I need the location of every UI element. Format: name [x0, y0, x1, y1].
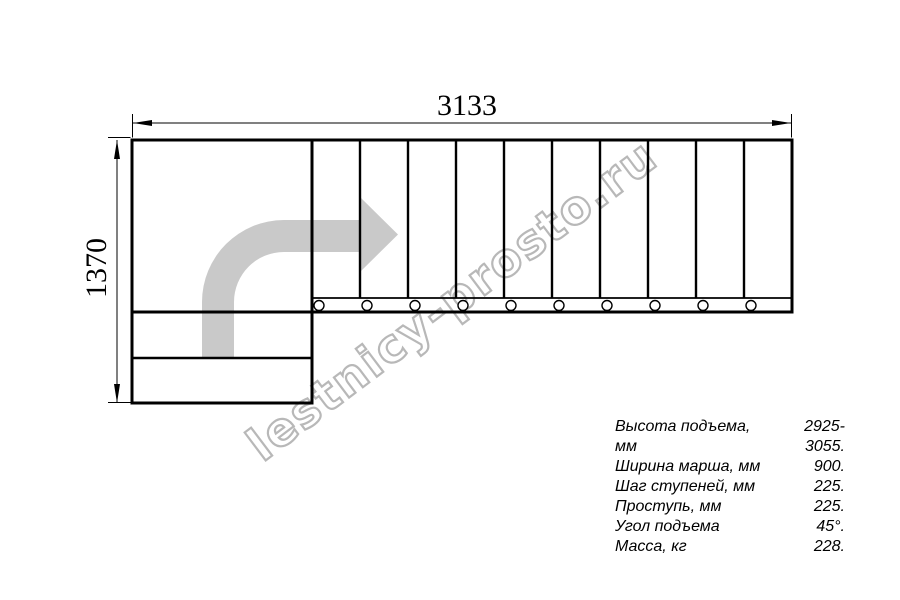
spec-value: 45°.: [816, 517, 845, 537]
spec-value: 225.: [814, 477, 845, 497]
spec-row-angle: Угол подъема 45°.: [615, 517, 845, 537]
specs-table: Высота подъема, мм 2925-3055. Ширина мар…: [615, 417, 845, 557]
spec-label: Высота подъема, мм: [615, 417, 768, 457]
spec-value: 228.: [814, 537, 845, 557]
spec-label: Масса, кг: [615, 537, 687, 557]
dimension-width-label: 3133: [407, 89, 527, 123]
spec-row-step-pitch: Шаг ступеней, мм 225.: [615, 477, 845, 497]
baluster-circles: [314, 301, 756, 311]
spec-label: Проступь, мм: [615, 497, 721, 517]
dim-arrow-top: [114, 140, 120, 159]
dim-arrow-right: [772, 120, 791, 126]
spec-value: 2925-3055.: [768, 417, 845, 457]
spec-row-flight-width: Ширина марша, мм 900.: [615, 457, 845, 477]
dimension-height-label: 1370: [80, 238, 114, 298]
spec-value: 225.: [814, 497, 845, 517]
spec-row-mass: Масса, кг 228.: [615, 537, 845, 557]
spec-row-height: Высота подъема, мм 2925-3055.: [615, 417, 845, 457]
spec-row-tread: Проступь, мм 225.: [615, 497, 845, 517]
dim-arrow-left: [133, 120, 152, 126]
spec-value: 900.: [814, 457, 845, 477]
spec-label: Шаг ступеней, мм: [615, 477, 755, 497]
direction-arrow: [202, 197, 398, 358]
stair-plan-page: lestnicy-prosto.ru: [0, 0, 900, 600]
dim-arrow-bottom: [114, 384, 120, 403]
spec-label: Ширина марша, мм: [615, 457, 760, 477]
spec-label: Угол подъема: [615, 517, 720, 537]
